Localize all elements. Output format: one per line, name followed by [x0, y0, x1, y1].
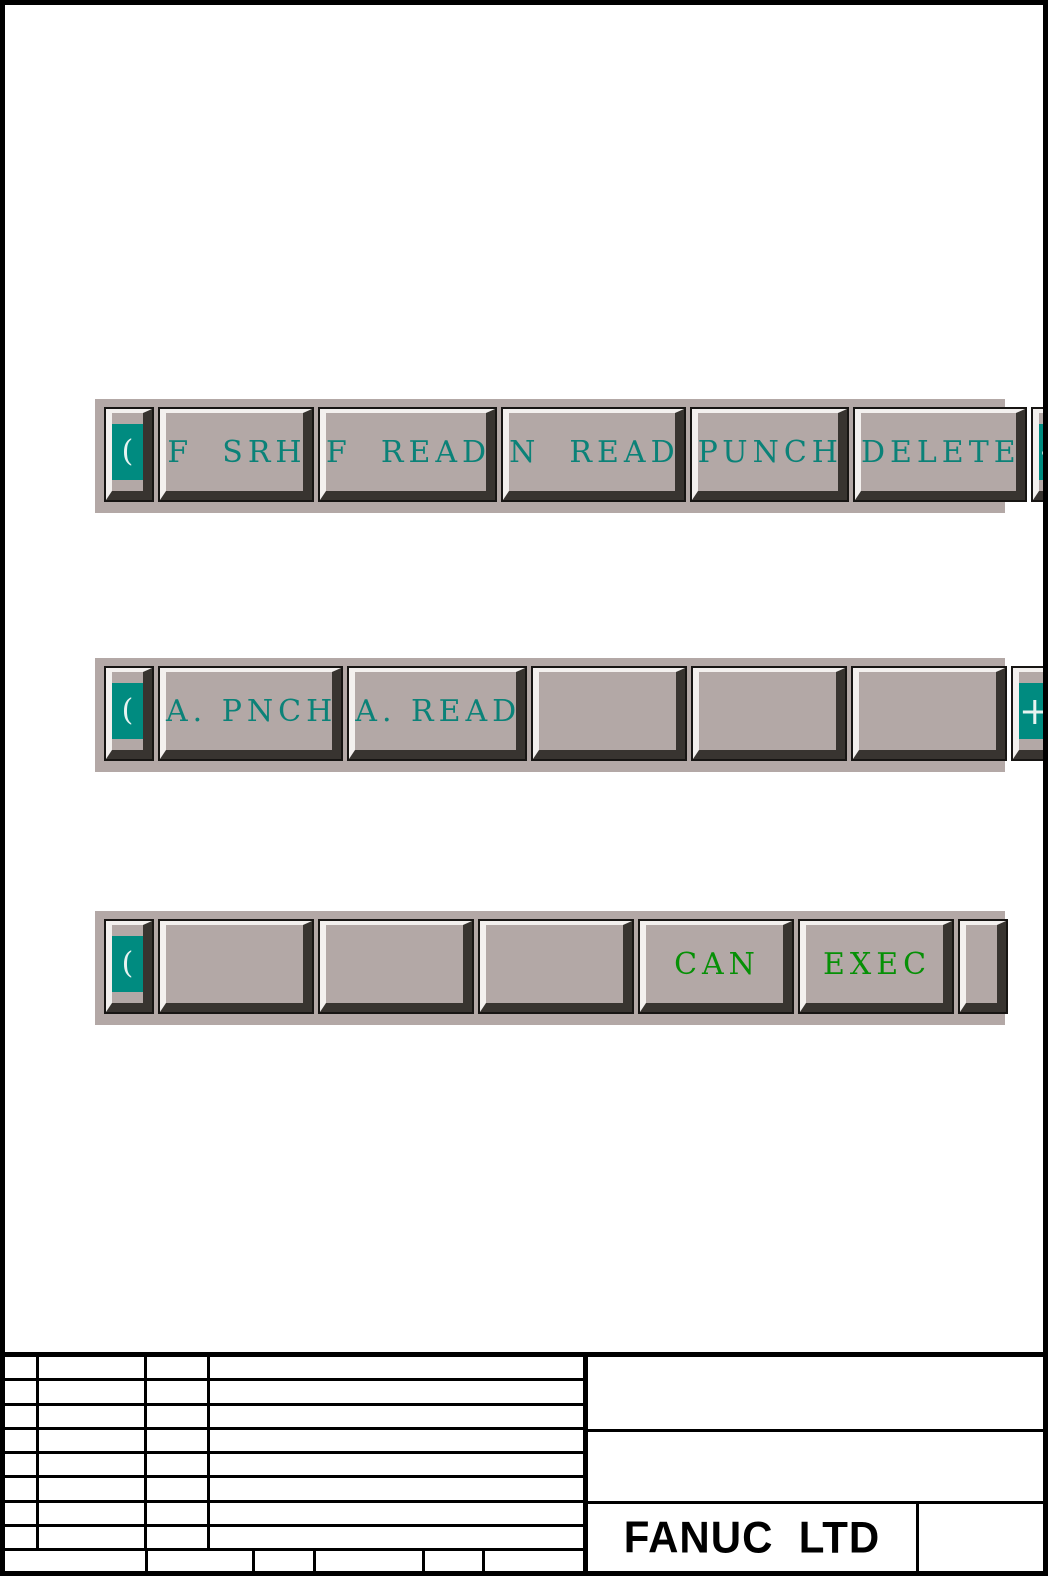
- table-cell: [147, 1430, 207, 1451]
- table-cell: [147, 1381, 207, 1402]
- softkey-n-read[interactable]: N READ: [503, 409, 684, 500]
- drawing-number-box: [588, 1432, 1043, 1501]
- table-cell: [5, 1503, 36, 1524]
- softkey-label: DELETE: [861, 435, 1021, 470]
- next-menu-softkey[interactable]: +: [1013, 668, 1048, 759]
- softkey-delete[interactable]: DELETE: [855, 409, 1025, 500]
- softkey-label: F SRH: [167, 435, 306, 470]
- softkey-label: A. READ: [355, 694, 521, 729]
- table-cell: [485, 1551, 583, 1571]
- table-cell: [210, 1503, 583, 1524]
- softkey-label: EXEC: [823, 947, 931, 982]
- table-cell: [210, 1454, 583, 1475]
- table-cell: [210, 1406, 583, 1427]
- prev-menu-softkey[interactable]: (: [106, 409, 152, 500]
- softkey-a-read[interactable]: A. READ: [349, 668, 525, 759]
- softkey-can[interactable]: CAN: [640, 921, 792, 1012]
- table-cell: [147, 1406, 207, 1427]
- softkey-label: CAN: [674, 947, 760, 982]
- table-cell: [255, 1551, 313, 1571]
- table-cell: [5, 1478, 36, 1499]
- prev-menu-softkey[interactable]: (: [106, 921, 152, 1012]
- softkey-f-srh[interactable]: F SRH: [160, 409, 312, 500]
- revision-table: [5, 1357, 583, 1548]
- stamp-cell: [919, 1504, 1043, 1571]
- softkey-label: N READ: [509, 435, 680, 470]
- table-cell: [5, 1430, 36, 1451]
- blank-glyph: [966, 936, 997, 992]
- table-cell: [5, 1381, 36, 1402]
- table-cell: [39, 1381, 144, 1402]
- softkey-blank[interactable]: [533, 668, 685, 759]
- softkey-a-pnch[interactable]: A. PNCH: [160, 668, 341, 759]
- softkey-blank[interactable]: [480, 921, 632, 1012]
- softkey-bar-1: ( F SRH F READ N READ PUNCH DELETE +: [95, 399, 1005, 513]
- table-cell: [5, 1551, 145, 1571]
- prev-menu-softkey[interactable]: (: [106, 668, 152, 759]
- drawing-title-box: [588, 1357, 1043, 1429]
- table-cell: [210, 1357, 583, 1378]
- table-cell: [147, 1527, 207, 1548]
- table-cell: [210, 1381, 583, 1402]
- next-menu-softkey-blank[interactable]: [960, 921, 1006, 1012]
- table-cell: [5, 1357, 36, 1378]
- plus-icon: +: [1019, 683, 1048, 739]
- footer-row: [5, 1551, 583, 1571]
- left-chevron-icon: (: [112, 683, 143, 739]
- company-name-cell: FANUC LTD: [588, 1504, 919, 1571]
- table-cell: [5, 1406, 36, 1427]
- table-cell: [148, 1551, 252, 1571]
- table-cell: [39, 1527, 144, 1548]
- drawing-page: ( F SRH F READ N READ PUNCH DELETE + ( A…: [0, 0, 1048, 1576]
- company-box: FANUC LTD: [588, 1504, 1043, 1571]
- softkey-bar-3: ( CAN EXEC: [95, 911, 1005, 1025]
- table-cell: [39, 1454, 144, 1475]
- company-logo: FANUC LTD: [624, 1512, 881, 1562]
- title-block-right: FANUC LTD: [588, 1357, 1043, 1571]
- table-cell: [5, 1527, 36, 1548]
- table-cell: [210, 1430, 583, 1451]
- left-chevron-icon: (: [112, 936, 143, 992]
- table-cell: [39, 1503, 144, 1524]
- table-cell: [147, 1478, 207, 1499]
- table-cell: [425, 1551, 482, 1571]
- softkey-blank[interactable]: [160, 921, 312, 1012]
- softkey-f-read[interactable]: F READ: [320, 409, 495, 500]
- left-chevron-icon: (: [112, 424, 143, 480]
- softkey-blank[interactable]: [693, 668, 845, 759]
- softkey-bar-2: ( A. PNCH A. READ +: [95, 658, 1005, 772]
- next-menu-softkey[interactable]: +: [1033, 409, 1048, 500]
- table-cell: [147, 1357, 207, 1378]
- title-block: FANUC LTD: [5, 1352, 1043, 1571]
- table-cell: [147, 1503, 207, 1524]
- softkey-blank[interactable]: [853, 668, 1005, 759]
- table-cell: [39, 1357, 144, 1378]
- table-cell: [210, 1527, 583, 1548]
- table-cell: [39, 1406, 144, 1427]
- table-cell: [316, 1551, 422, 1571]
- softkey-exec[interactable]: EXEC: [800, 921, 952, 1012]
- softkey-label: F READ: [326, 435, 491, 470]
- softkey-label: A. PNCH: [166, 694, 337, 729]
- softkey-punch[interactable]: PUNCH: [692, 409, 847, 500]
- softkey-label: PUNCH: [698, 435, 843, 470]
- table-cell: [5, 1454, 36, 1475]
- table-cell: [39, 1430, 144, 1451]
- softkey-blank[interactable]: [320, 921, 472, 1012]
- table-cell: [147, 1454, 207, 1475]
- table-cell: [39, 1478, 144, 1499]
- plus-icon: +: [1039, 424, 1048, 480]
- table-cell: [210, 1478, 583, 1499]
